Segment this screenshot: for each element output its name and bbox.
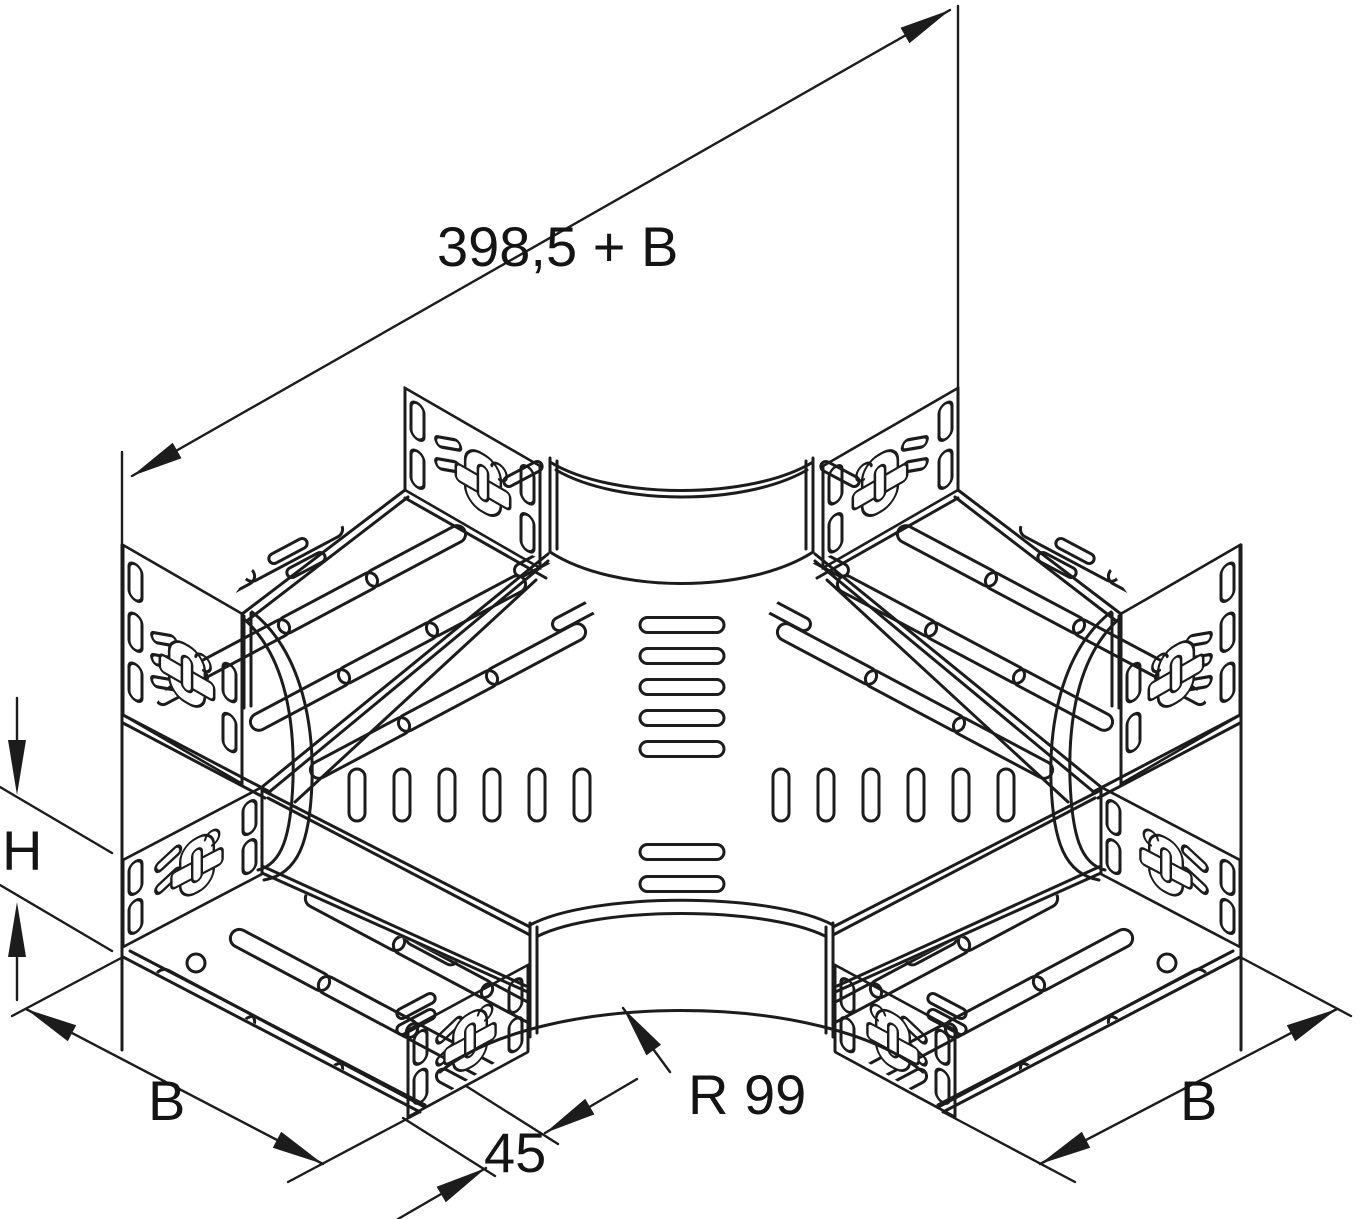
dim-label-height: H [2, 819, 42, 882]
center-floor-slot-columns [640, 618, 724, 892]
technical-drawing: 398,5 + B H B 45 R 99 B [0, 0, 1363, 1219]
dim-label-radius: R 99 [688, 1063, 806, 1126]
dim-label-width-left: B [148, 1069, 185, 1132]
right-half [757, 388, 1351, 1182]
left-half [12, 388, 606, 1182]
corner-band-back [550, 458, 813, 584]
dim-label-offset-45: 45 [484, 1121, 546, 1184]
dim-label-length: 398,5 + B [437, 215, 678, 278]
drawing-canvas: 398,5 + B H B 45 R 99 B [0, 0, 1363, 1219]
dimension-radius-leader [623, 1008, 670, 1072]
dim-label-width-right: B [1180, 1069, 1217, 1132]
